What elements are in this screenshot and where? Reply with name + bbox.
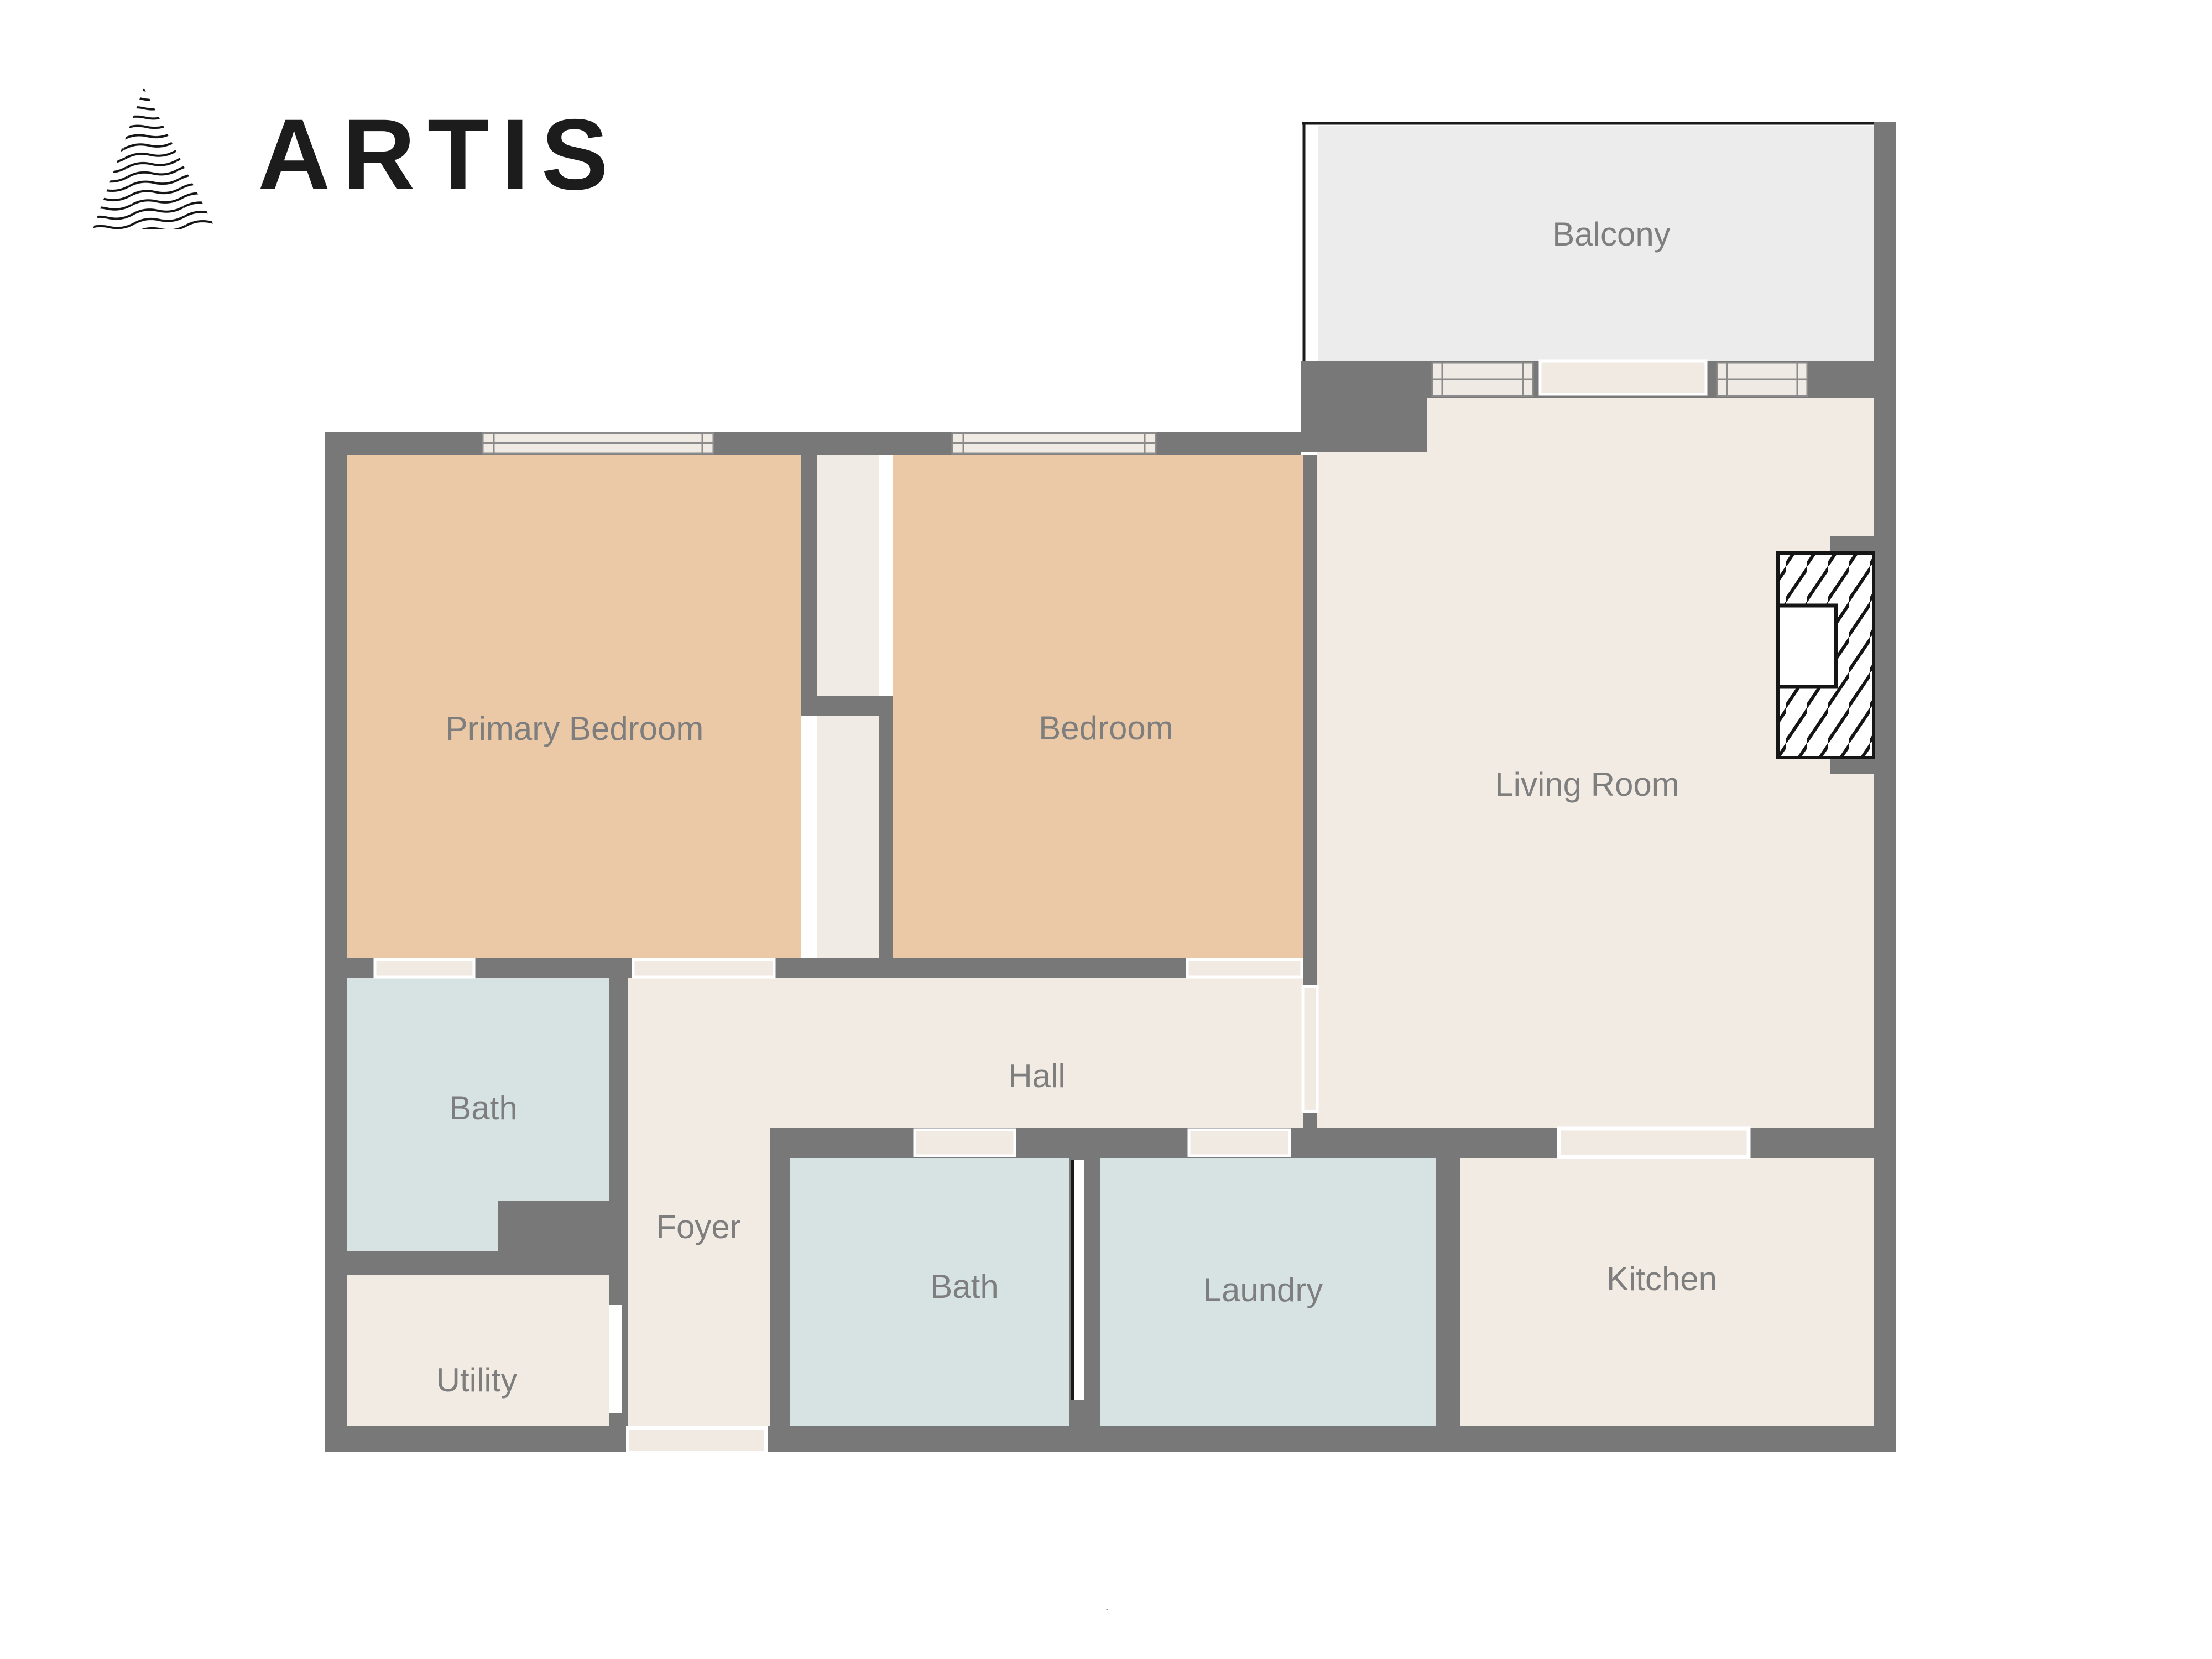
room-bedroom [893,455,1303,958]
door-bath2-pocket-leaf [1071,1160,1074,1400]
fireplace-ledge-bottom [1830,758,1896,774]
fireplace-firebox [1778,606,1836,687]
room-hall [628,978,1303,1128]
door-bath-ensuite [375,959,474,977]
door-kitchen [1559,1129,1749,1157]
room-label-bath2: Bath [930,1268,998,1305]
room-label-utility: Utility [436,1361,518,1399]
room-label-hall: Hall [1008,1057,1065,1094]
door-entrance [628,1428,766,1452]
room-label-living-room: Living Room [1495,766,1679,803]
wall-closet-left [801,455,817,716]
window-living-left [1432,363,1533,396]
door-bath2-pocket [1071,1160,1084,1400]
door-utility [609,1305,622,1413]
wall-bedrooms-bottom [347,958,1317,978]
room-label-balcony: Balcony [1552,216,1670,253]
closet-lower [817,716,879,958]
door-laundry [1189,1130,1290,1156]
wall-closet-right [879,696,893,958]
room-label-bedroom: Bedroom [1039,709,1173,747]
door-closet-upper [879,458,893,693]
room-label-primary-bedroom: Primary Bedroom [446,710,704,747]
room-label-foyer: Foyer [656,1208,740,1245]
room-living [1317,398,1874,1128]
window-primary-bedroom [483,433,713,453]
door-bath2 [915,1130,1015,1156]
fireplace-ledge-top [1830,536,1896,553]
window-living-right [1717,363,1807,396]
wall-corner-block [1301,361,1427,452]
door-primary-bedroom [633,959,774,977]
room-foyer [628,1128,770,1426]
wall-right [1874,122,1896,1452]
room-utility [347,1275,609,1426]
brand-logo: ARTIS [93,87,620,229]
wall-left [325,455,347,1426]
room-label-kitchen: Kitchen [1606,1260,1717,1297]
wall-hall-living-stub-bottom [1303,1112,1317,1128]
opening-hall-living [1303,987,1317,1112]
wall-laundry-kitchen [1436,1158,1460,1426]
wall-closet-divider [801,696,893,716]
door-bedroom [1187,959,1302,977]
wall-bottom [325,1426,1896,1452]
logo-icon [93,87,216,229]
wall-bath2-left [770,1158,790,1426]
footnote-dot: . [1105,1597,1109,1614]
floor-plan-canvas: ARTIS [0,0,2212,1659]
room-primary-bedroom [347,455,801,958]
window-bedroom [952,433,1156,453]
closet-upper [817,455,879,696]
door-closet-lower [802,718,817,956]
room-label-bath-ensuite: Bath [449,1089,517,1126]
door-balcony [1540,361,1706,394]
wall-bath1-notch [498,1201,609,1251]
wall-bath1-utility [347,1251,628,1275]
room-bath2 [790,1158,1069,1426]
logo-wordmark: ARTIS [258,98,620,211]
room-label-laundry: Laundry [1203,1271,1323,1308]
wall-bedroom-living [1303,455,1317,958]
